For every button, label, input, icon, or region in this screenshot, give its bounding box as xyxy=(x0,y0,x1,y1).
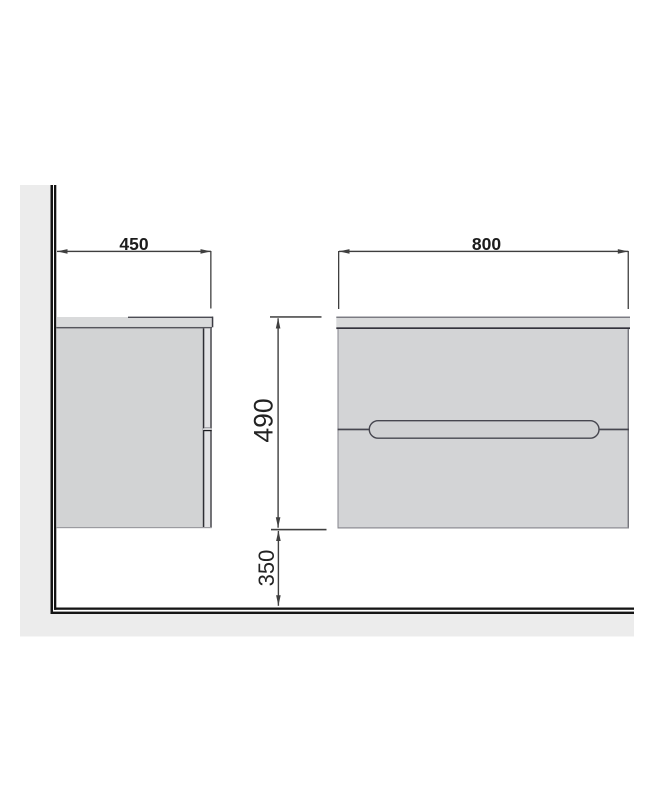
svg-text:350: 350 xyxy=(254,550,279,587)
svg-text:490: 490 xyxy=(249,398,279,442)
svg-text:450: 450 xyxy=(119,234,148,254)
svg-text:800: 800 xyxy=(472,234,501,254)
